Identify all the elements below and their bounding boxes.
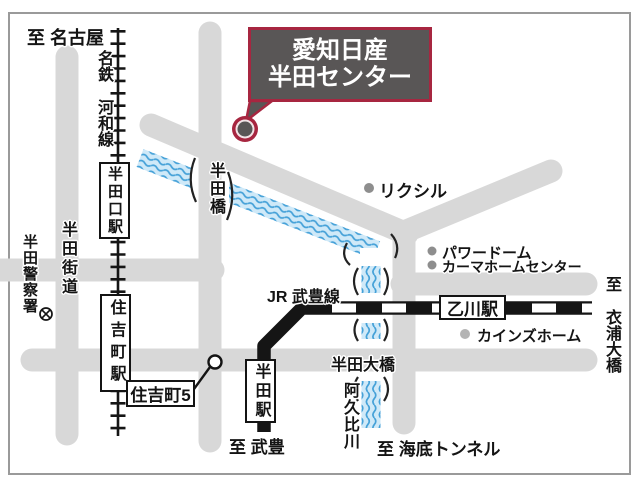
dealer-callout: 愛知日産 半田センター <box>248 27 432 102</box>
station-box-handaguchi: 半田口駅 <box>99 162 130 239</box>
station-box-sumiyoshicho: 住吉町駅 <box>100 294 131 392</box>
power-dome-dot-icon <box>428 247 437 256</box>
label-to-taketoyo: 至 武豊 <box>229 433 285 458</box>
lixil-dot-icon <box>364 183 374 193</box>
station-label: 半田口駅 <box>104 166 125 236</box>
station-label: 半田駅 <box>249 363 273 420</box>
intersection-node-icon <box>209 356 222 369</box>
police-station-icon <box>40 308 52 320</box>
dealer-callout-line1: 愛知日産 <box>292 38 388 65</box>
intersection-box-sumiyoshicho5: 住吉町5 <box>126 380 195 407</box>
label-lixil: リクシル <box>379 177 447 202</box>
label-handabashi-bridge: 半田橋 <box>203 162 227 216</box>
station-label: 乙川駅 <box>447 295 498 320</box>
label-handa-ohashi-bridge: 半田大橋 <box>331 351 395 375</box>
label-to-nagoya: 至 名古屋 <box>27 24 104 50</box>
station-label: 住吉町駅 <box>104 299 128 387</box>
label-agui-river: 阿久比川 <box>337 382 361 450</box>
station-box-otsukawa: 乙川駅 <box>439 295 506 320</box>
label-to-kinuura-ohashi: 至 衣浦大橋 <box>599 276 623 373</box>
label-meitetsu-kowa-line: 名鉄 河和線 <box>91 50 115 147</box>
label-kama-home-center: カーマホームセンター <box>442 257 582 277</box>
access-map: 愛知日産 半田センター 半田口駅 住吉町駅 半田駅 乙川駅 住吉町5 至 名古屋… <box>0 0 640 480</box>
location-marker-icon <box>232 116 258 142</box>
label-handa-police: 半田警察署 <box>19 234 40 314</box>
label-jr-taketoyo-line: JR 武豊線 <box>267 283 340 307</box>
label-to-kaitei-tunnel: 至 海底トンネル <box>377 435 500 460</box>
station-box-handa: 半田駅 <box>245 359 276 423</box>
dealer-callout-line2: 半田センター <box>268 65 412 92</box>
intersection-label: 住吉町5 <box>130 381 190 406</box>
cainz-dot-icon <box>460 329 470 339</box>
label-cainz-home: カインズホーム <box>477 325 581 346</box>
label-handa-kaido: 半田街道 <box>55 221 79 297</box>
kama-dot-icon <box>428 261 437 270</box>
